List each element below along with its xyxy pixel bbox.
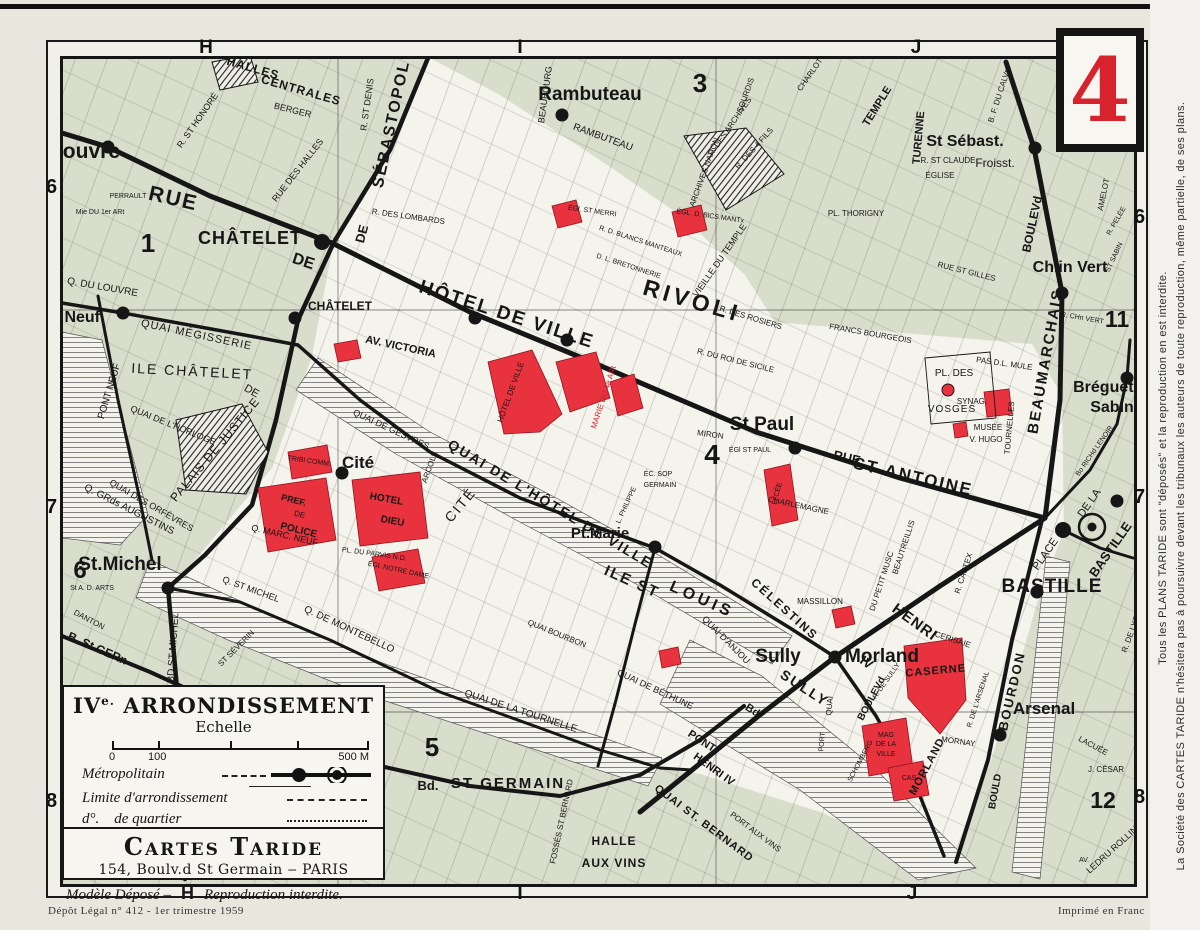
grid-number-left-8: 8 (46, 790, 57, 813)
legend-title-sup: e. (101, 694, 115, 708)
quartier-dotted-line (287, 820, 367, 822)
publisher-name: Cartes Taride (64, 832, 383, 861)
metro-label: Métropolitain (82, 766, 165, 782)
legend-title: IVe. ARRONDISSEMENT (64, 687, 383, 718)
taride-map-sheet: LouvreR. ST HONORÉPERRAULTMie DU 1er ARt… (0, 0, 1200, 930)
grid-letter-top-I: I (517, 37, 522, 59)
modele-right: Reproduction interdite. (204, 887, 343, 904)
legend-quartier-row: d°. de quartier (82, 811, 371, 829)
side-copyright-line-1: Tous les PLANS TARIDE sont "déposés" et … (1155, 43, 1171, 893)
modele-left: Modèle Déposé ‒ (66, 887, 171, 904)
grid-letter-bottom-I: I (517, 883, 522, 905)
legend-title-rest: ARRONDISSEMENT (123, 693, 374, 718)
quartier-prefix: d°. (82, 811, 99, 827)
metro-line-symbol (271, 767, 371, 783)
publisher-address: 154, Boulv.d St Germain ‒ PARIS (64, 862, 383, 878)
limite-dashed-line (287, 799, 367, 801)
depot-legal-note: Dépôt Légal n° 412 - 1er trimestre 1959 (48, 905, 244, 917)
legend-metro-row: Métropolitain (82, 766, 371, 784)
grid-letter-bottom-J: J (907, 883, 918, 905)
grid-letter-top-J: J (911, 37, 922, 59)
legend-scale-word: Echelle (64, 718, 383, 736)
legend-publisher-section: Cartes Taride 154, Boulv.d St Germain ‒ … (64, 829, 383, 878)
legend-box: IVe. ARRONDISSEMENT Echelle 0 100 500 M … (62, 685, 385, 880)
legend-limite-row: Limite d'arrondissement (82, 790, 371, 808)
metro-dashed-line (222, 775, 266, 777)
quartier-label: de quartier (114, 811, 181, 827)
modele-depose-line: Modèle Déposé ‒ H Reproduction interdite… (66, 883, 396, 904)
scale-100: 100 (148, 751, 166, 763)
grid-number-right-7: 7 (1134, 486, 1145, 509)
grid-number-right-8: 8 (1134, 786, 1145, 809)
scale-labels: 0 100 500 M (112, 751, 369, 763)
scale-bar (112, 740, 369, 750)
limite-label: Limite d'arrondissement (82, 790, 228, 806)
grid-number-left-7: 7 (46, 496, 57, 519)
side-copyright-line-2: La Société des CARTES TARIDE n'hésitera … (1173, 61, 1189, 911)
grid-letter-top-H: H (199, 37, 213, 59)
grid-number-left-6: 6 (46, 176, 57, 199)
plate-number: 4 (1069, 46, 1130, 134)
arrondissement-plate: 4 (1056, 28, 1144, 152)
grid-letter-h-bottom: H (181, 883, 194, 904)
legend-title-roman: IV (73, 693, 101, 718)
legend-divider-rule (249, 786, 311, 787)
grid-number-right-6: 6 (1134, 206, 1145, 229)
scale-0: 0 (109, 751, 115, 763)
legend-top-section: IVe. ARRONDISSEMENT Echelle 0 100 500 M … (64, 687, 383, 829)
imprime-note: Imprimé en Franc (1058, 905, 1145, 917)
scale-500: 500 M (338, 751, 369, 763)
